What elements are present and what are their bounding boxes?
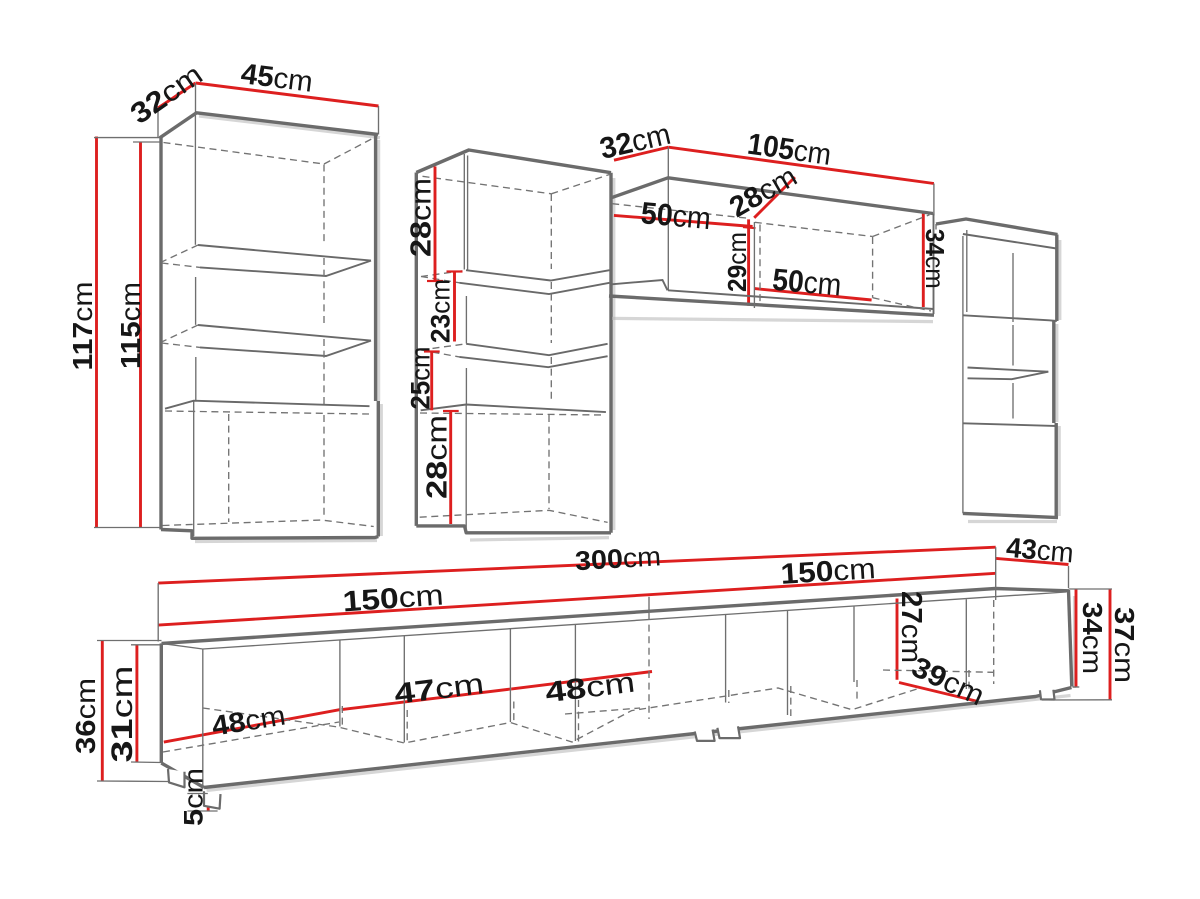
svg-text:300cm: 300cm — [574, 541, 662, 576]
svg-text:115cm: 115cm — [115, 282, 146, 369]
svg-text:50cm: 50cm — [771, 262, 843, 303]
svg-text:25cm: 25cm — [406, 347, 436, 410]
svg-text:28cm: 28cm — [421, 415, 453, 499]
svg-text:29cm: 29cm — [722, 232, 752, 292]
svg-text:5cm: 5cm — [179, 768, 209, 826]
svg-text:34cm: 34cm — [1077, 602, 1108, 674]
svg-text:50cm: 50cm — [640, 195, 713, 236]
svg-text:34cm: 34cm — [920, 229, 950, 289]
svg-text:36cm: 36cm — [70, 678, 101, 754]
svg-text:43cm: 43cm — [1005, 532, 1075, 569]
svg-text:37cm: 37cm — [1109, 607, 1140, 683]
svg-text:31cm: 31cm — [106, 666, 139, 763]
svg-text:150cm: 150cm — [780, 553, 877, 591]
svg-text:117cm: 117cm — [67, 282, 98, 371]
svg-text:23cm: 23cm — [426, 279, 456, 343]
svg-text:28cm: 28cm — [405, 178, 437, 257]
